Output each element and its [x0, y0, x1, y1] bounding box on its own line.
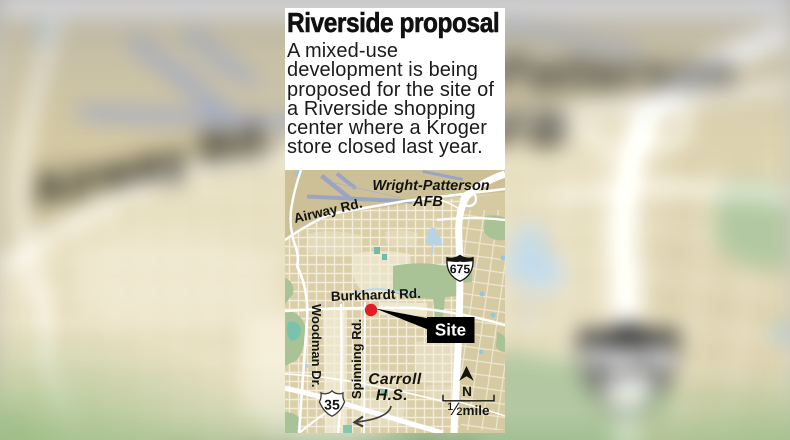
svg-text:AFB: AFB	[412, 194, 443, 210]
svg-text:Woodman Dr.: Woodman Dr.	[309, 304, 324, 388]
svg-text:Carroll: Carroll	[368, 371, 422, 388]
svg-text:675: 675	[450, 264, 471, 277]
svg-text:Wright-Patterson: Wright-Patterson	[372, 178, 489, 194]
svg-text:H.S.: H.S.	[376, 387, 408, 404]
svg-text:Site: Site	[435, 321, 466, 340]
svg-text:N: N	[462, 384, 472, 399]
svg-text:Burkhardt Rd.: Burkhardt Rd.	[331, 286, 421, 304]
svg-text:35: 35	[324, 396, 340, 412]
svg-text:Spinning Rd.: Spinning Rd.	[349, 319, 364, 399]
